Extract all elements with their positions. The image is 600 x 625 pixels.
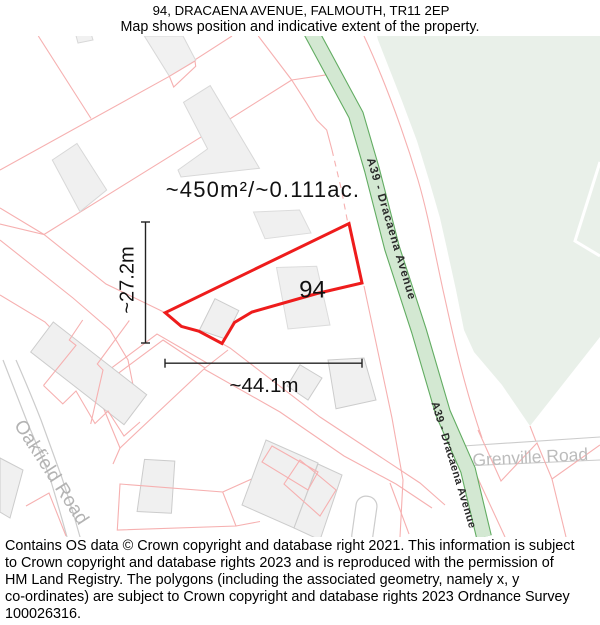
svg-text:co-ordinates) are subject to C: co-ordinates) are subject to Crown copyr… — [5, 589, 571, 605]
svg-text:~27.2m: ~27.2m — [117, 246, 139, 313]
svg-text:~44.1m: ~44.1m — [230, 374, 299, 397]
svg-text:94, DRACAENA AVENUE, FALMOUTH,: 94, DRACAENA AVENUE, FALMOUTH, TR11 2EP — [153, 3, 450, 18]
svg-text:HM Land Registry. The polygons: HM Land Registry. The polygons (includin… — [5, 572, 520, 588]
svg-text:Map shows position and indicat: Map shows position and indicative extent… — [121, 19, 480, 35]
svg-text:Contains OS data © Crown copyr: Contains OS data © Crown copyright and d… — [5, 538, 574, 554]
svg-text:~450m²/~0.111ac.: ~450m²/~0.111ac. — [166, 177, 361, 202]
svg-text:to Crown copyright and databas: to Crown copyright and database rights 2… — [5, 555, 555, 571]
svg-text:100026316.: 100026316. — [5, 606, 81, 622]
svg-text:94: 94 — [299, 277, 326, 304]
